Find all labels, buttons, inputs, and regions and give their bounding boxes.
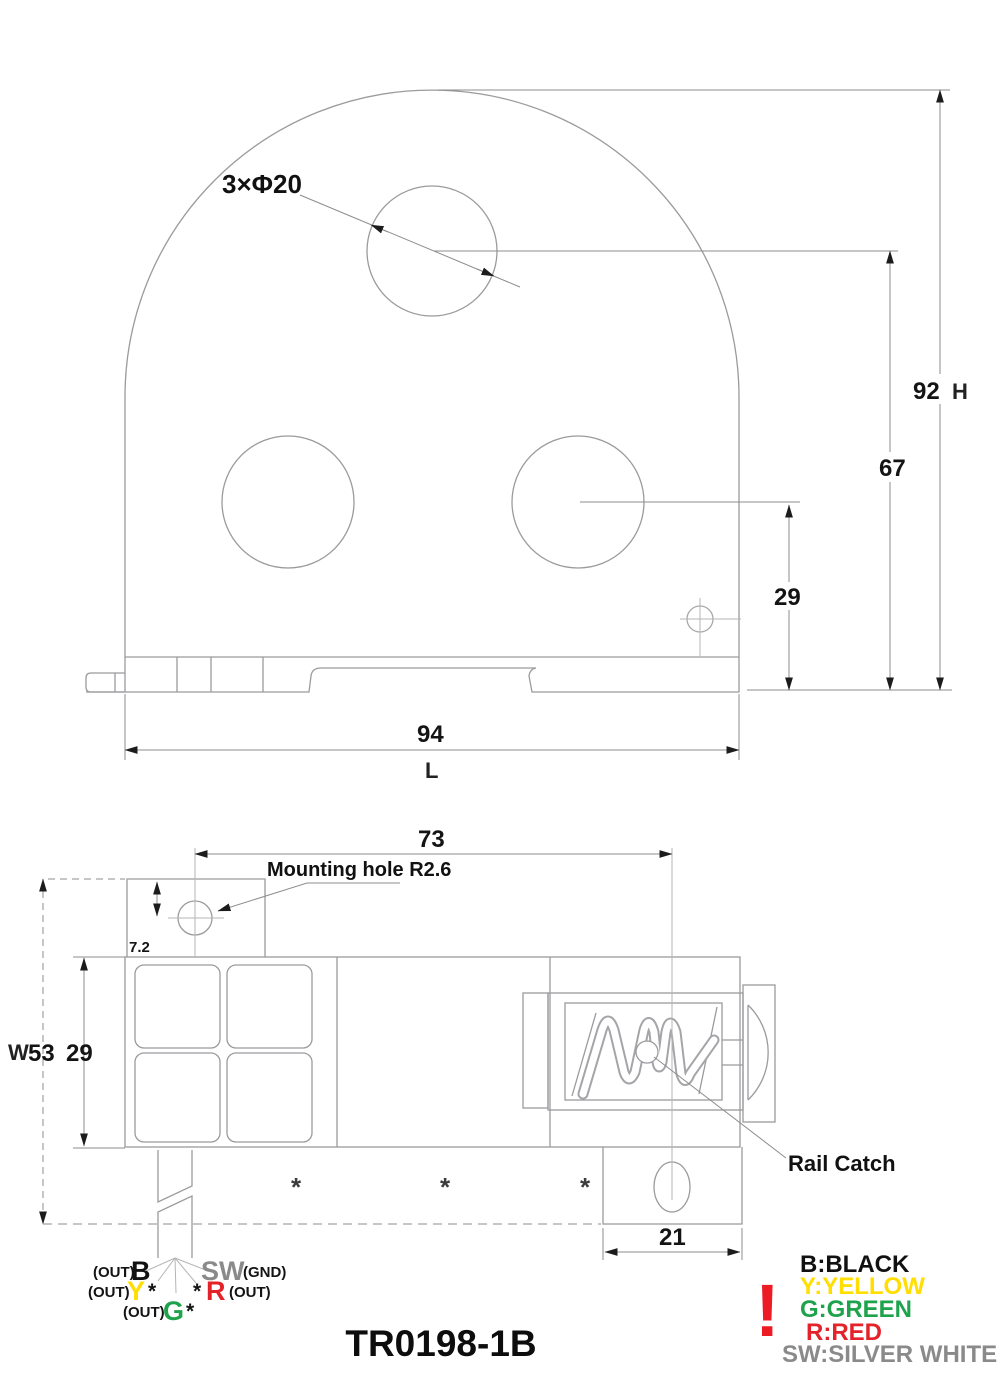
dim-21: 21 (659, 1224, 686, 1251)
technical-drawing: 3×Φ20 92 H 67 29 94 L (0, 0, 1000, 1375)
wire-y-out: (OUT) (88, 1284, 130, 1301)
top-view-body-outline (125, 90, 739, 657)
wire-r-code: R (206, 1276, 226, 1306)
wire-g-out: (OUT) (123, 1304, 165, 1321)
mounting-hole-callout: Mounting hole R2.6 (267, 859, 451, 881)
asterisk-3: * (580, 1172, 591, 1202)
dim-67: 67 (879, 455, 906, 482)
dim-92-suffix: H (952, 379, 968, 404)
wire-g-star: * (186, 1300, 195, 1323)
dim-94-suffix: L (425, 758, 438, 783)
wire-sw-gnd: (GND) (243, 1264, 286, 1281)
left-foot-tab (86, 673, 125, 692)
holes-callout: 3×Φ20 (222, 169, 302, 199)
legend-silver-white: SW:SILVER WHITE (782, 1341, 997, 1368)
dim-94: 94 (417, 721, 444, 748)
asterisk-1: * (291, 1172, 302, 1202)
rail-catch-left-bracket (523, 993, 548, 1108)
din-rail-foot-profile (86, 657, 739, 692)
color-legend: ! B:BLACK Y:YELLOW G:GREEN R:RED SW:SILV… (755, 1251, 997, 1368)
wire-r-star: * (193, 1280, 202, 1303)
hole-left (222, 436, 354, 568)
dim-w-prefix: W (8, 1040, 29, 1065)
wire-bundle (158, 1150, 192, 1258)
dim-label-backers (770, 374, 982, 610)
dim-53: 53 (28, 1040, 55, 1067)
dim-73: 73 (418, 826, 445, 853)
asterisk-2: * (440, 1172, 451, 1202)
dim-29-side-view: 29 (66, 1040, 93, 1067)
dim-29-top-view: 29 (774, 584, 801, 611)
technical-drawing-page: 3×Φ20 92 H 67 29 94 L (0, 0, 1000, 1375)
dim-92: 92 (913, 378, 940, 405)
wire-r-out: (OUT) (229, 1284, 271, 1301)
wire-y-star: * (148, 1280, 157, 1303)
rail-catch-label: Rail Catch (788, 1151, 896, 1176)
warning-exclamation: ! (755, 1269, 780, 1352)
wire-labels: (OUT) B SW (GND) (OUT) Y * * R (OUT) (OU… (88, 1256, 286, 1326)
wire-y-code: Y (127, 1276, 145, 1306)
spring-pin (636, 1041, 658, 1063)
top-view (86, 90, 741, 692)
dim-7-2: 7.2 (129, 939, 150, 956)
wire-g-code: G (163, 1296, 184, 1326)
part-number-title: TR0198-1B (345, 1323, 536, 1364)
